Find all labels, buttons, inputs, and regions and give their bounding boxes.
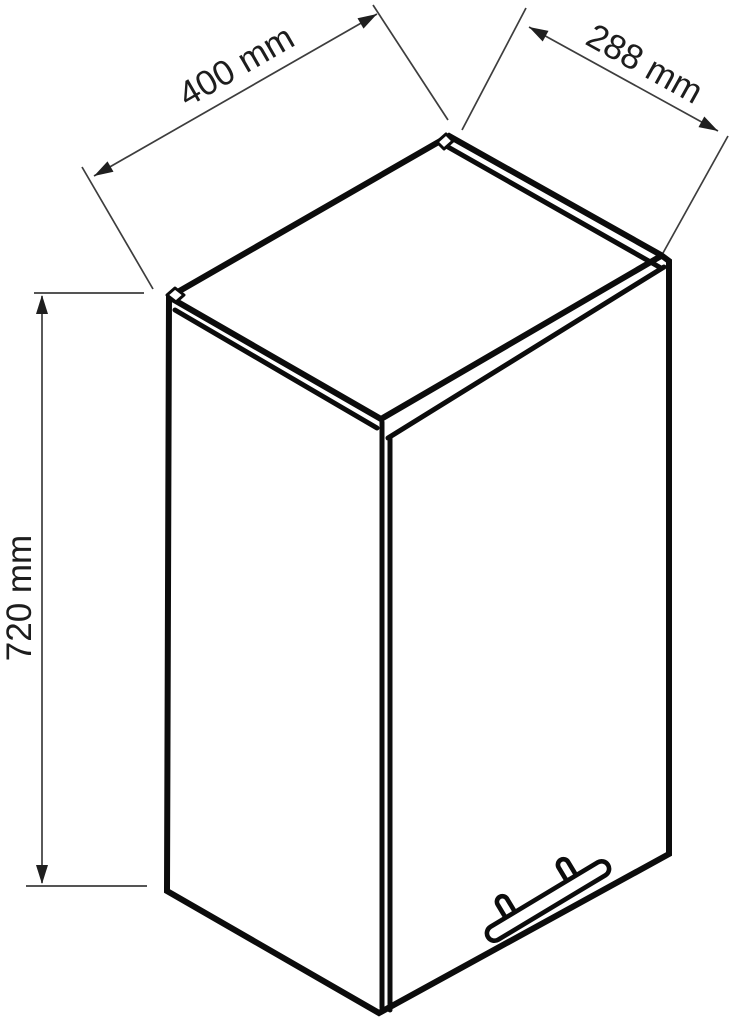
height-dimension: 720 mm [0, 293, 147, 886]
cabinet [167, 134, 669, 1013]
depth-extension-line-right [663, 136, 728, 253]
depth-arrow-right-icon [699, 117, 719, 132]
drawing-canvas: 400 mm 288 mm 720 mm [0, 0, 729, 1020]
width-extension-line-left [82, 167, 153, 289]
depth-arrow-left-icon [529, 27, 549, 42]
width-arrow-left-icon [94, 161, 114, 176]
depth-dimension-label: 288 mm [580, 16, 709, 111]
width-dimension-line [94, 14, 377, 176]
height-arrow-bottom-icon [36, 865, 48, 884]
height-arrow-top-icon [36, 295, 48, 314]
depth-extension-line-left [462, 8, 526, 130]
height-dimension-label: 720 mm [0, 535, 39, 661]
width-dimension-label: 400 mm [172, 18, 301, 115]
cabinet-dimension-diagram: 400 mm 288 mm 720 mm [0, 0, 729, 1020]
width-arrow-right-icon [358, 14, 378, 29]
width-extension-line-right [373, 5, 448, 120]
